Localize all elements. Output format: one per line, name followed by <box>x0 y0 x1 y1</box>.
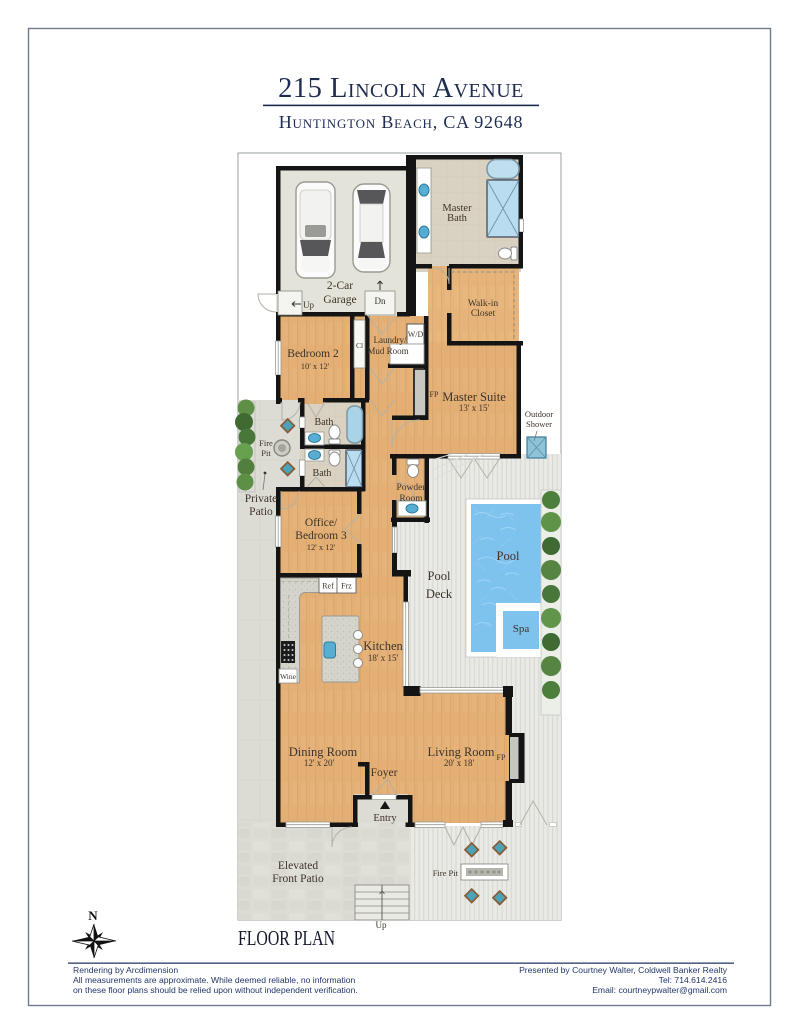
svg-text:Tel: 714.614.2416: Tel: 714.614.2416 <box>659 975 728 985</box>
svg-text:Bath: Bath <box>313 468 332 479</box>
svg-text:Up: Up <box>376 920 387 930</box>
svg-text:Pool: Pool <box>497 549 520 563</box>
svg-text:Room: Room <box>399 494 423 504</box>
svg-text:Email: courtneypwalter@gmail.c: Email: courtneypwalter@gmail.com <box>592 985 727 995</box>
svg-text:Cl: Cl <box>356 341 363 350</box>
svg-text:Office/: Office/ <box>305 517 338 529</box>
svg-text:Walk-in: Walk-in <box>468 299 499 309</box>
svg-text:Fire: Fire <box>259 438 273 448</box>
svg-text:Dining Room: Dining Room <box>289 745 358 759</box>
svg-text:Living Room: Living Room <box>427 745 494 759</box>
svg-text:13' x 15': 13' x 15' <box>459 403 490 413</box>
svg-text:215 Lincoln Avenue: 215 Lincoln Avenue <box>278 73 524 104</box>
svg-text:FLOOR PLAN: FLOOR PLAN <box>238 926 335 950</box>
svg-text:on these floor plans should be: on these floor plans should be relied up… <box>73 985 358 995</box>
svg-text:Rendering by Arcdimension: Rendering by Arcdimension <box>73 965 178 975</box>
svg-text:Huntington Beach, CA 92648: Huntington Beach, CA 92648 <box>279 112 524 132</box>
svg-text:20' x 18': 20' x 18' <box>444 758 475 768</box>
svg-text:Front Patio: Front Patio <box>272 873 324 885</box>
svg-text:Wine: Wine <box>280 672 297 681</box>
svg-text:Kitchen: Kitchen <box>363 639 403 653</box>
svg-text:Outdoor: Outdoor <box>525 409 554 419</box>
svg-text:Bedroom 2: Bedroom 2 <box>287 348 339 360</box>
svg-text:Mud Room: Mud Room <box>367 346 408 356</box>
svg-text:Laundry/: Laundry/ <box>374 335 407 345</box>
svg-text:Pit: Pit <box>261 448 271 458</box>
svg-text:10' x 12': 10' x 12' <box>301 361 330 371</box>
svg-text:All measurements are approxima: All measurements are approximate. While … <box>73 975 356 985</box>
svg-text:Closet: Closet <box>471 309 496 319</box>
svg-text:Shower: Shower <box>526 419 552 429</box>
svg-text:Master Suite: Master Suite <box>442 390 506 404</box>
svg-text:Dn: Dn <box>375 296 386 306</box>
svg-text:Pool: Pool <box>428 569 451 583</box>
svg-text:Presented by Courtney Walter,: Presented by Courtney Walter, Coldwell B… <box>519 965 728 975</box>
svg-text:Ref: Ref <box>322 582 334 591</box>
svg-text:Foyer: Foyer <box>371 767 398 779</box>
svg-text:Elevated: Elevated <box>278 860 318 872</box>
svg-text:Spa: Spa <box>513 623 530 635</box>
svg-text:Patio: Patio <box>249 506 273 518</box>
svg-text:Deck: Deck <box>426 587 453 601</box>
svg-text:Bedroom 3: Bedroom 3 <box>295 530 347 542</box>
svg-text:Fire Pit: Fire Pit <box>433 868 459 878</box>
svg-text:Private: Private <box>245 493 278 505</box>
svg-text:Entry: Entry <box>373 813 397 824</box>
svg-text:12' x 12': 12' x 12' <box>307 542 336 552</box>
svg-text:Frz: Frz <box>341 582 352 591</box>
svg-text:Up: Up <box>303 300 314 310</box>
svg-text:12' x 20': 12' x 20' <box>304 758 335 768</box>
svg-text:18' x 15': 18' x 15' <box>368 653 399 663</box>
svg-text:Bath: Bath <box>315 417 334 428</box>
svg-text:Bath: Bath <box>447 213 468 224</box>
svg-text:N: N <box>88 908 98 923</box>
svg-text:Garage: Garage <box>323 294 356 306</box>
svg-text:FP: FP <box>430 390 439 399</box>
svg-text:2-Car: 2-Car <box>327 280 353 292</box>
svg-text:W/D: W/D <box>408 330 424 339</box>
svg-text:Powder: Powder <box>396 483 426 493</box>
svg-text:FP: FP <box>497 753 506 762</box>
